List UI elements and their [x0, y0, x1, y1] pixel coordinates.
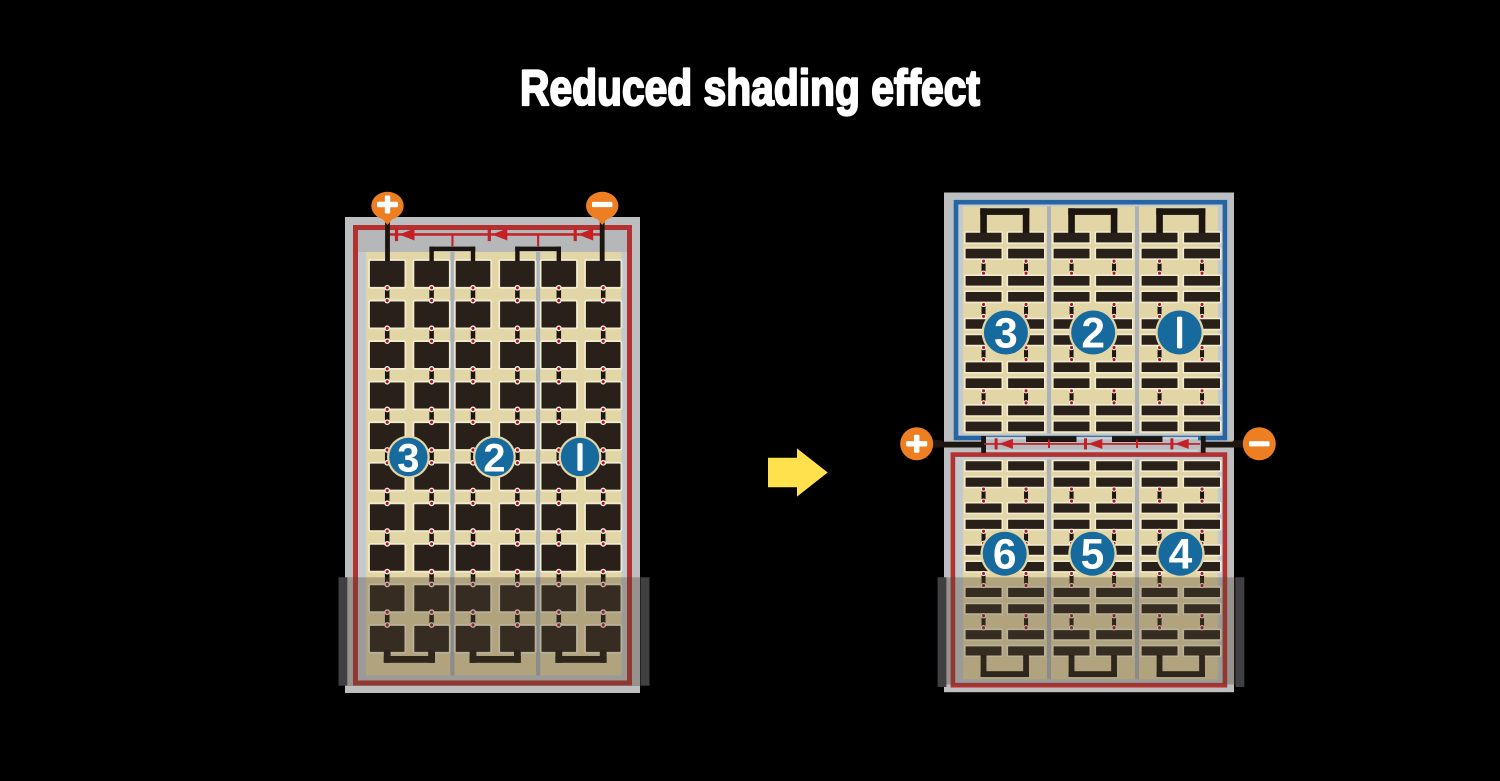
svg-text:3: 3: [397, 437, 419, 481]
svg-text:2: 2: [1081, 311, 1105, 358]
svg-text:4: 4: [1169, 532, 1193, 579]
svg-text:6: 6: [993, 532, 1017, 579]
svg-text:3: 3: [994, 311, 1018, 358]
svg-text:2: 2: [483, 437, 505, 481]
svg-text:Reduced shading effect: Reduced shading effect: [520, 60, 980, 116]
svg-text:5: 5: [1081, 532, 1105, 579]
